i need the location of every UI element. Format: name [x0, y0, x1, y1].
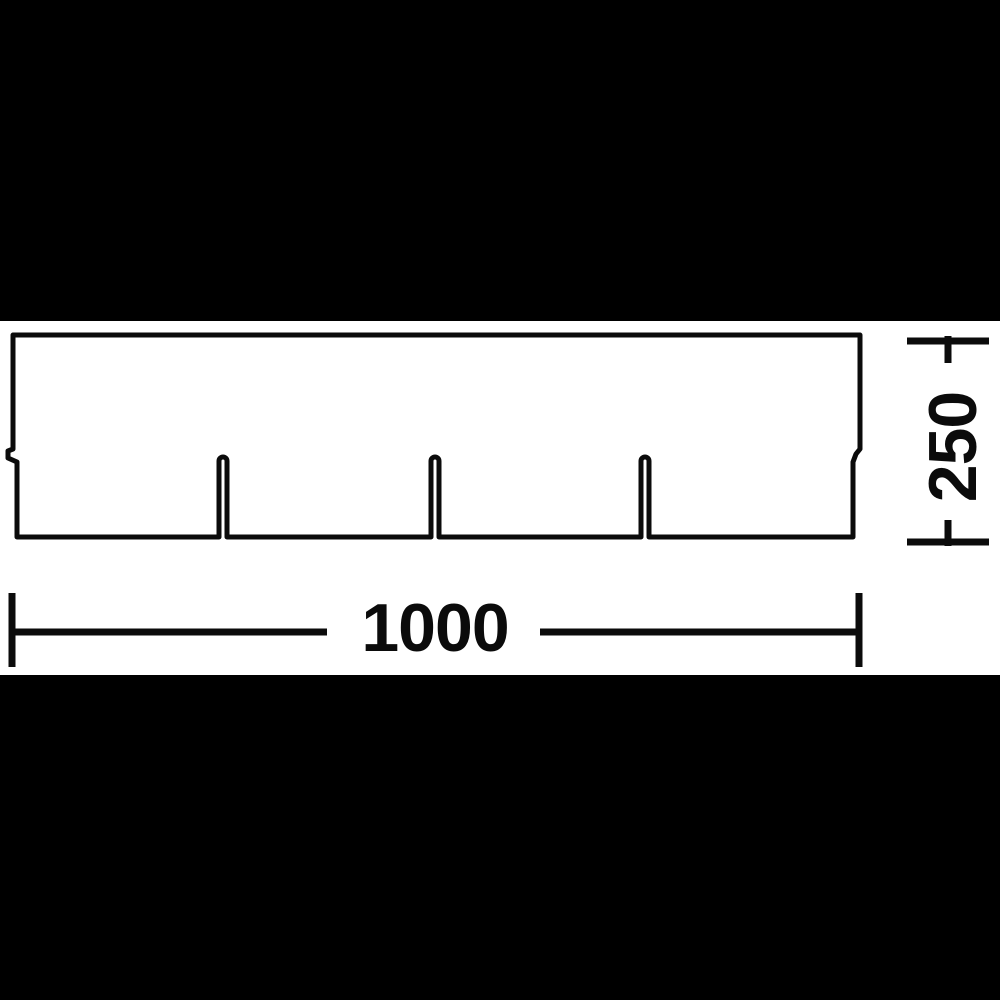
shingle-outline: [8, 335, 860, 537]
width-dim-label: 1000: [361, 590, 508, 666]
shingle-technical-drawing: 250 1000: [0, 0, 1000, 1000]
width-dimension: 1000: [12, 590, 859, 667]
diagram-stage: 250 1000: [0, 0, 1000, 1000]
height-dim-label: 250: [915, 392, 991, 502]
height-dimension: 250: [907, 336, 991, 546]
